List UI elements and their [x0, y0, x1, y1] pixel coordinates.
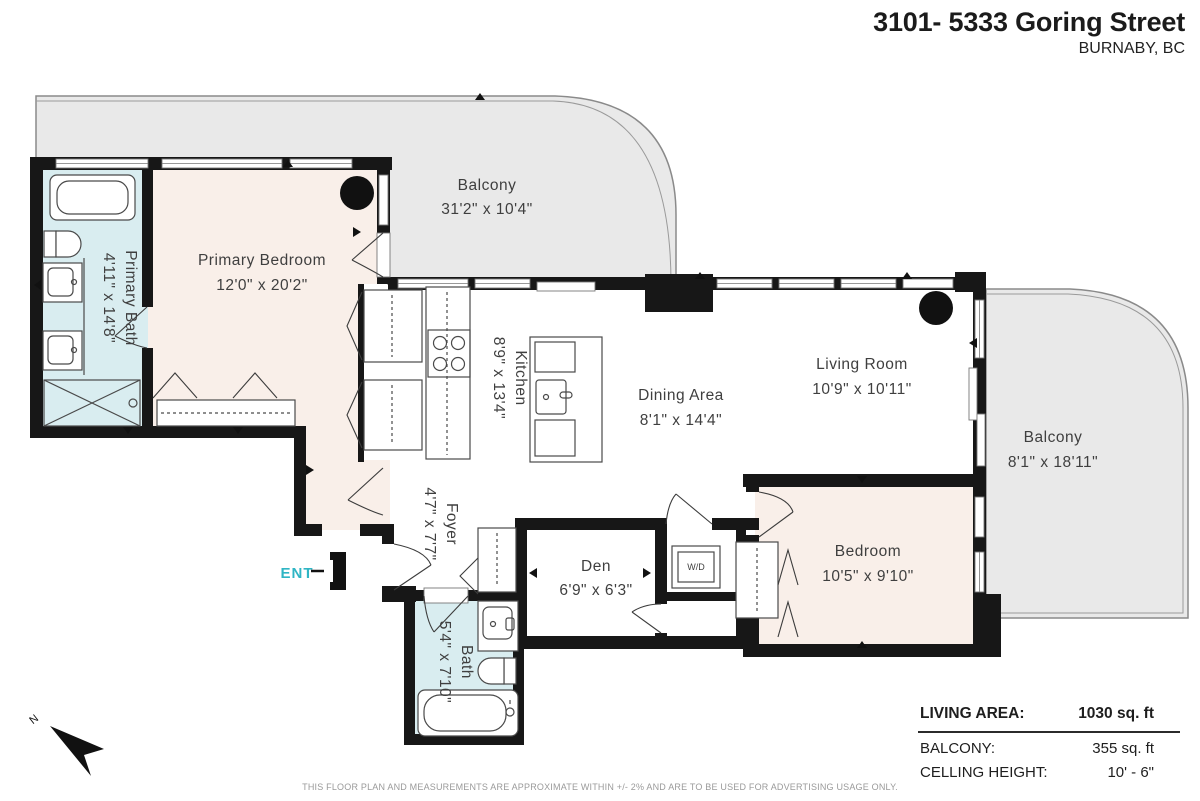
toilet	[44, 231, 56, 257]
kitchen-counter	[426, 287, 470, 459]
page-subtitle: BURNABY, BC	[873, 40, 1185, 58]
label-dining-dims: 8'1" x 14'4"	[640, 412, 722, 429]
label-den-name: Den	[581, 558, 611, 575]
disclaimer-text: THIS FLOOR PLAN AND MEASUREMENTS ARE APP…	[0, 782, 1200, 792]
entry-label: ENT	[281, 565, 314, 582]
legend-value: 355 sq. ft	[1092, 740, 1180, 757]
legend-row-ceiling-height: CELLING HEIGHT: 10' - 6"	[918, 760, 1180, 784]
label-foyer-name: Foyer	[443, 503, 460, 545]
label-primary-bath-name: Primary Bath	[122, 250, 139, 346]
label-laundry: W/D	[687, 562, 705, 572]
floor-plan: Balcony 31'2" x 10'4" Primary Bedroom 12…	[0, 0, 1200, 801]
coat-closet	[460, 528, 516, 594]
primary-bedroom-floor	[148, 163, 390, 530]
page-title: 3101- 5333 Goring Street	[873, 8, 1185, 38]
entry-door-gap	[324, 560, 333, 582]
label-den-dims: 6'9" x 6'3"	[559, 582, 632, 599]
legend-row-living-area: LIVING AREA: 1030 sq. ft	[918, 701, 1180, 733]
label-primary-bedroom-dims: 12'0" x 20'2"	[216, 277, 308, 294]
north-arrow-icon	[50, 726, 104, 776]
label-bedroom-dims: 10'5" x 9'10"	[822, 568, 914, 585]
entry-marker: ENT	[281, 552, 347, 590]
bathtub	[50, 175, 135, 220]
legend-label: BALCONY:	[920, 740, 995, 757]
label-dining-name: Dining Area	[638, 387, 724, 404]
laundry-door	[666, 494, 712, 524]
label-balcony-top-name: Balcony	[458, 177, 517, 194]
closet	[364, 290, 422, 362]
column	[919, 291, 953, 325]
label-foyer-dims: 4'7" x 7'7"	[421, 487, 438, 560]
floorplan-page: Balcony 31'2" x 10'4" Primary Bedroom 12…	[0, 0, 1200, 801]
label-kitchen-dims: 8'9" x 13'4"	[490, 337, 507, 419]
den-door	[632, 604, 661, 633]
legend-row-balcony: BALCONY: 355 sq. ft	[918, 736, 1180, 760]
label-bedroom-name: Bedroom	[835, 543, 901, 560]
north-label: N	[27, 712, 41, 726]
legend-value: 10' - 6"	[1107, 764, 1180, 781]
toilet	[504, 658, 516, 684]
legend-value: 1030 sq. ft	[1078, 705, 1180, 723]
label-balcony-top-dims: 31'2" x 10'4"	[441, 201, 533, 218]
label-balcony-right-dims: 8'1" x 18'11"	[1008, 454, 1098, 471]
label-primary-bedroom-name: Primary Bedroom	[198, 252, 326, 269]
label-living-dims: 10'9" x 10'11"	[812, 381, 911, 398]
label-bath-name: Bath	[458, 645, 475, 679]
legend-label: LIVING AREA:	[920, 705, 1024, 723]
north-arrow: N	[27, 712, 104, 776]
label-living-name: Living Room	[816, 356, 908, 373]
area-legend: LIVING AREA: 1030 sq. ft BALCONY: 355 sq…	[918, 701, 1180, 784]
closet	[364, 380, 422, 450]
legend-label: CELLING HEIGHT:	[920, 764, 1048, 781]
label-balcony-right-name: Balcony	[1024, 429, 1083, 446]
label-bath-dims: 5'4" x 7'10"	[436, 621, 453, 703]
label-primary-bath-dims: 4'11" x 14'8"	[100, 253, 117, 343]
kitchen-fixtures	[347, 287, 602, 462]
header: 3101- 5333 Goring Street BURNABY, BC	[873, 8, 1185, 58]
column	[340, 176, 374, 210]
label-kitchen-name: Kitchen	[512, 350, 529, 405]
